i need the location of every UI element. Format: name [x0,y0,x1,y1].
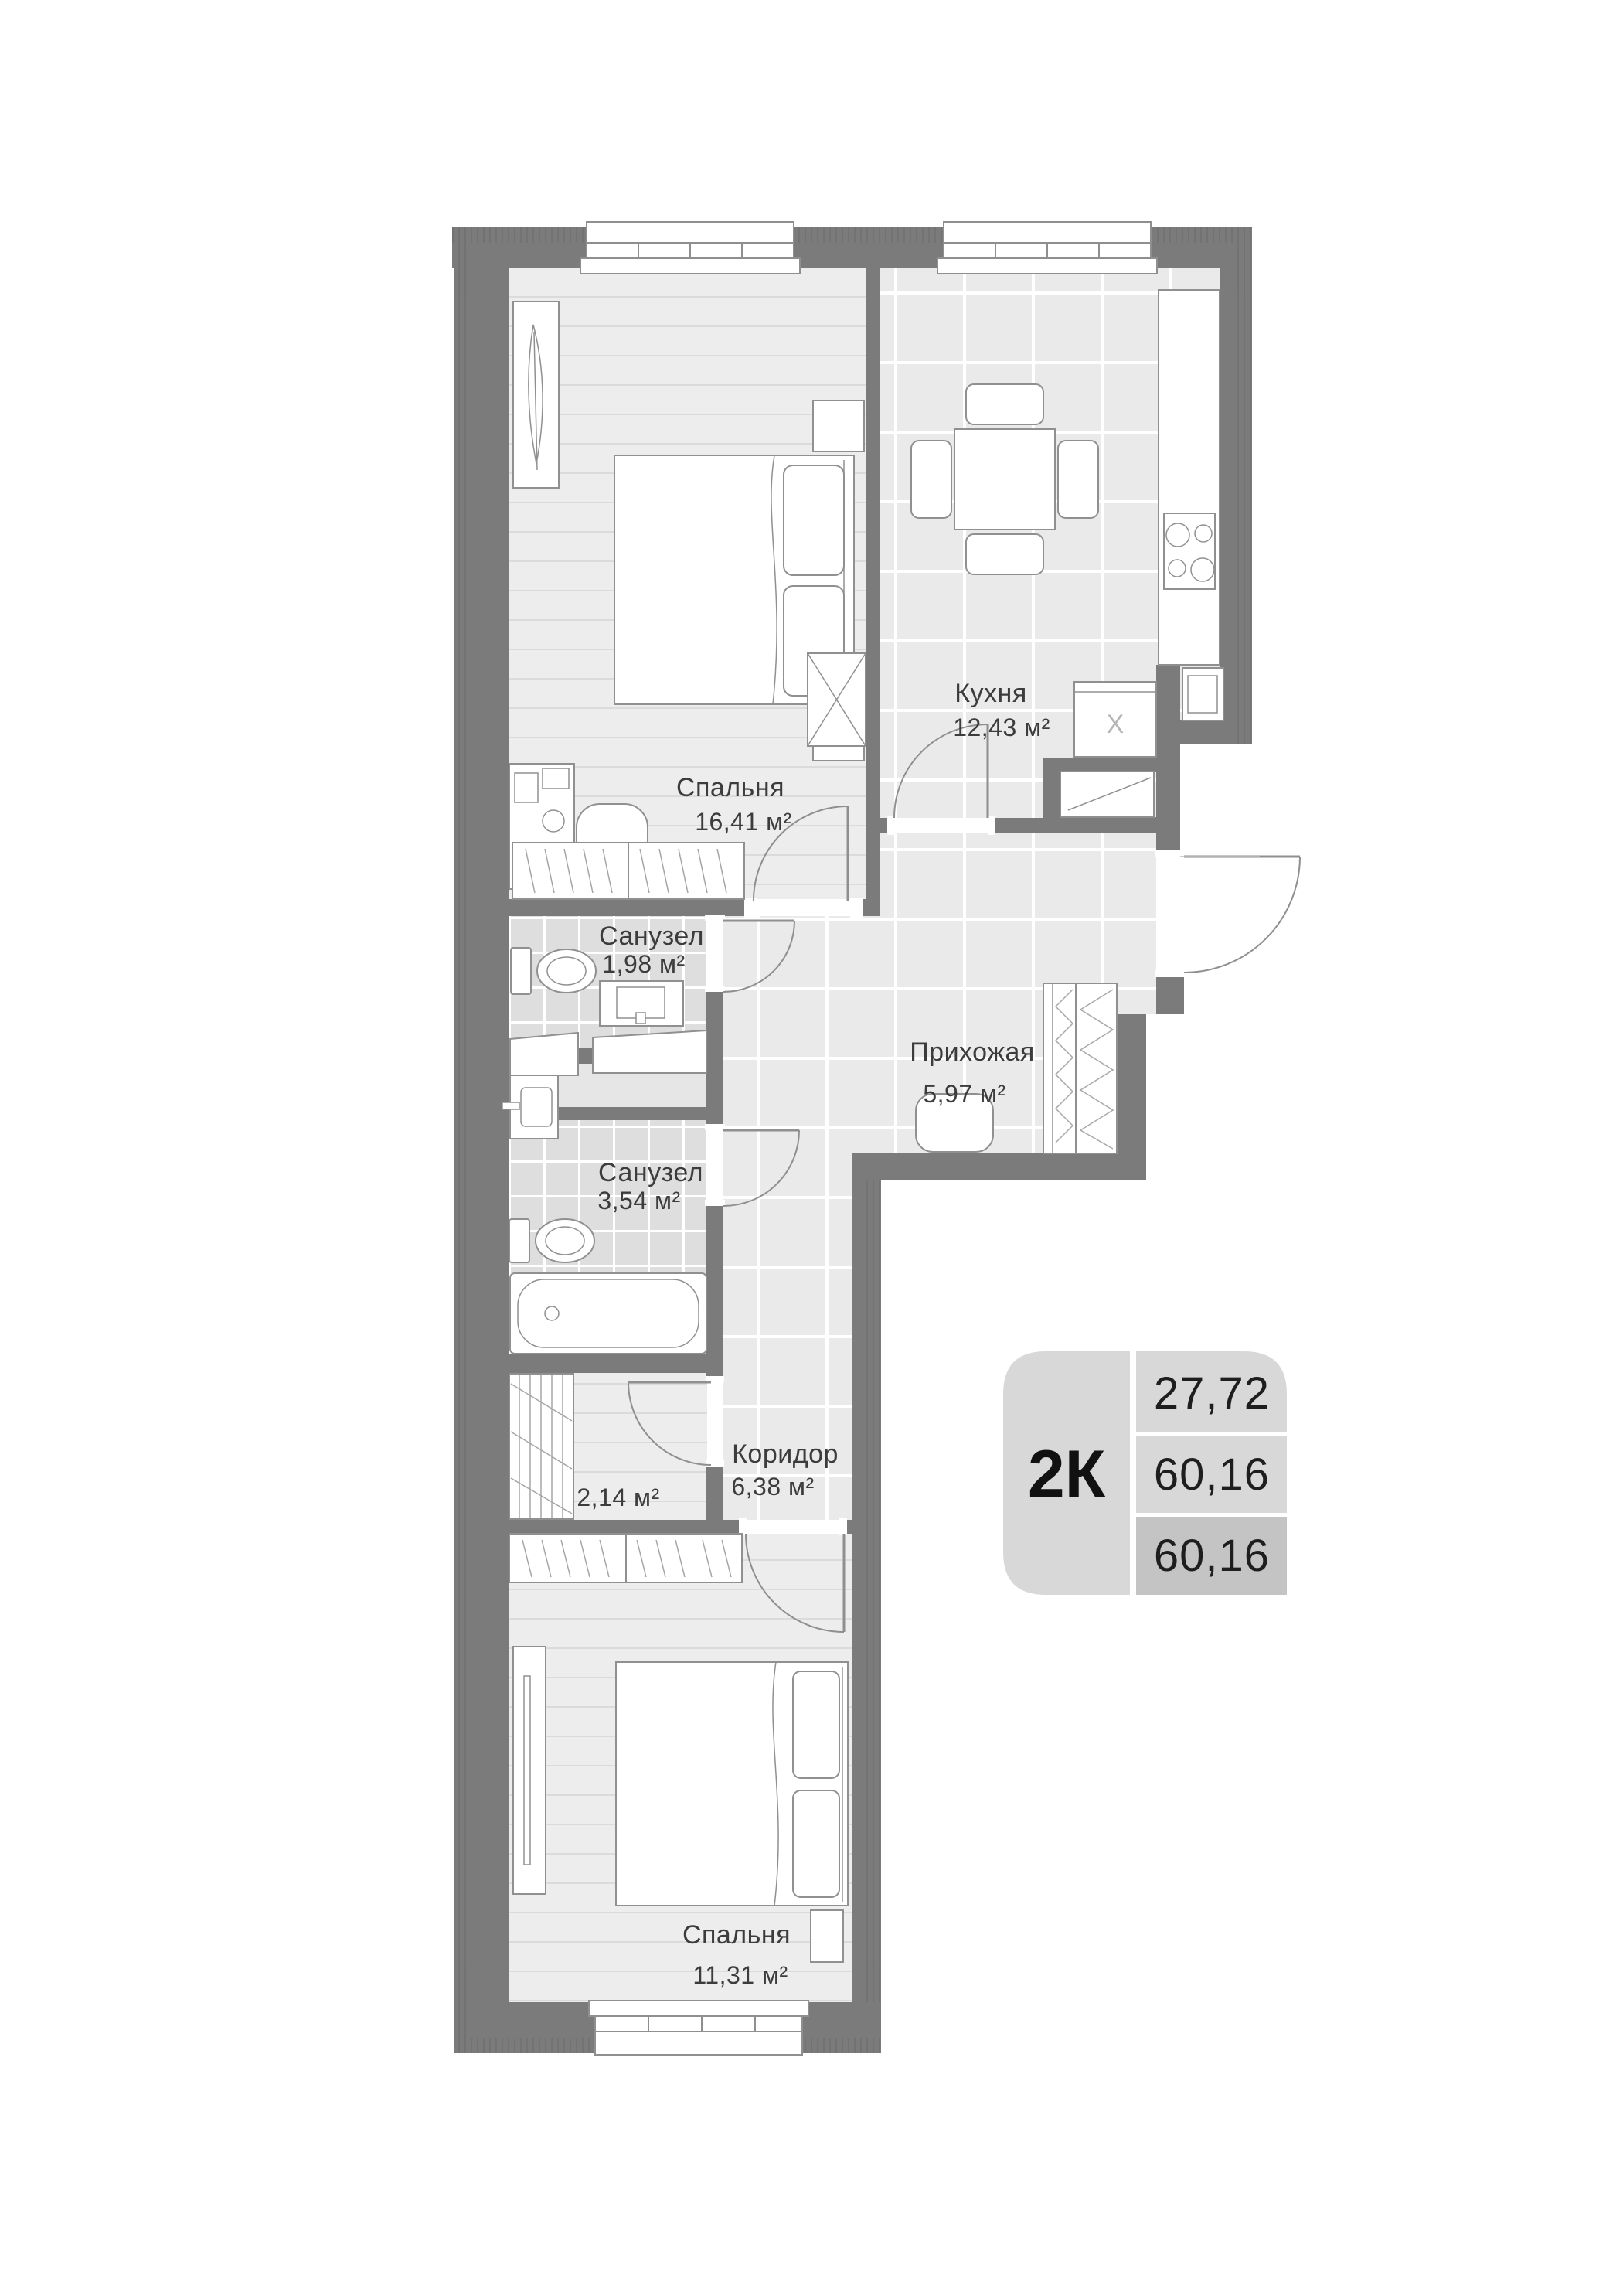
appliance-niche [510,1030,706,1075]
jamb [850,898,863,918]
wall-entry-upper [1156,665,1180,857]
jamb [705,1124,725,1130]
nightstand-icon [813,400,864,451]
toilet-icon [509,1219,594,1262]
washbasin-icon [600,981,683,1026]
jamb [744,898,757,918]
window-kitchen [937,222,1157,274]
label-storage-area: 2,14 м² [577,1484,659,1511]
sliding-wardrobe-icon [509,1534,742,1582]
wall-under-shaft-side [1043,772,1060,817]
wall-bath-col-4 [706,1467,723,1520]
jamb [1155,970,1184,977]
label-bathroom2-area: 3,54 м² [597,1187,680,1214]
label-bathroom1-area: 1,98 м² [602,950,685,978]
vent-shaft: X [1074,682,1156,757]
label-hallway-area: 5,97 м² [923,1080,1005,1108]
label-bedroom2-name: Спальня [682,1920,791,1950]
wardrobe-box-icon [808,653,866,746]
info-badge: 2К 27,72 60,16 60,16 [1003,1351,1287,1595]
wall-bathroom2-bottom [509,1354,706,1373]
jamb [705,915,725,921]
jamb [705,1200,725,1206]
jamb [839,1518,847,1535]
label-bedroom2-area: 11,31 м² [692,1961,788,1989]
tv-console-icon [513,1647,546,1894]
wall-entry-lower [1156,973,1184,1014]
bathtub-icon [510,1273,706,1354]
label-bathroom2-name: Санузел [598,1158,703,1187]
jamb [705,986,725,992]
hall-wardrobe-icon [1043,983,1117,1153]
label-bedroom1-area: 16,41 м² [695,808,792,836]
shelving-icon [509,1374,573,1519]
badge-value-2: 60,16 [1154,1449,1270,1500]
label-corridor-name: Коридор [732,1439,839,1469]
vanity-sink-icon [502,1075,558,1139]
sink-icon [1182,668,1223,720]
window-bedroom1 [580,222,800,274]
toilet-icon [511,948,596,994]
kitchen-counter [1159,290,1220,665]
window-bedroom2 [589,2001,808,2055]
label-kitchen-name: Кухня [954,679,1027,708]
label-corridor-area: 6,38 м² [731,1473,814,1501]
jamb [1155,850,1184,857]
wall-bath-col-3 [706,1206,723,1382]
wall-hall-bottom [852,1153,1146,1180]
stove-icon [1164,513,1215,589]
wall-kitchen-bottom-2 [988,818,1043,833]
label-bathroom1-name: Санузел [599,921,704,951]
shaft-x-mark: X [1107,710,1125,739]
badge-value-1: 27,72 [1154,1368,1270,1419]
badge-value-3: 60,16 [1154,1531,1270,1581]
wall-under-shaft-bottom [1043,817,1156,833]
label-kitchen-area: 12,43 м² [953,714,1050,741]
wall-bath-col-2 [706,992,723,1130]
label-bedroom1-name: Спальня [676,773,784,802]
nightstand-icon [811,1910,843,1962]
label-hallway-name: Прихожая [910,1037,1035,1067]
badge-type-label: 2К [1028,1437,1106,1511]
jamb [739,1518,747,1535]
jamb [988,816,995,835]
sliding-wardrobe-icon [512,843,744,899]
wall-corridor-bedroom2-1 [509,1520,743,1534]
bed-icon [616,1662,848,1906]
entry-cabinet-icon [1060,772,1154,817]
floor-plan-page: X [0,0,1623,2296]
wall-bedroom1-kitchen [866,268,880,899]
decor-panel-icon [513,301,559,488]
floor-plan: X [0,0,1623,2296]
door-entrance [1180,857,1300,973]
jamb [887,816,894,835]
wall-under-shaft-top [1043,758,1156,772]
